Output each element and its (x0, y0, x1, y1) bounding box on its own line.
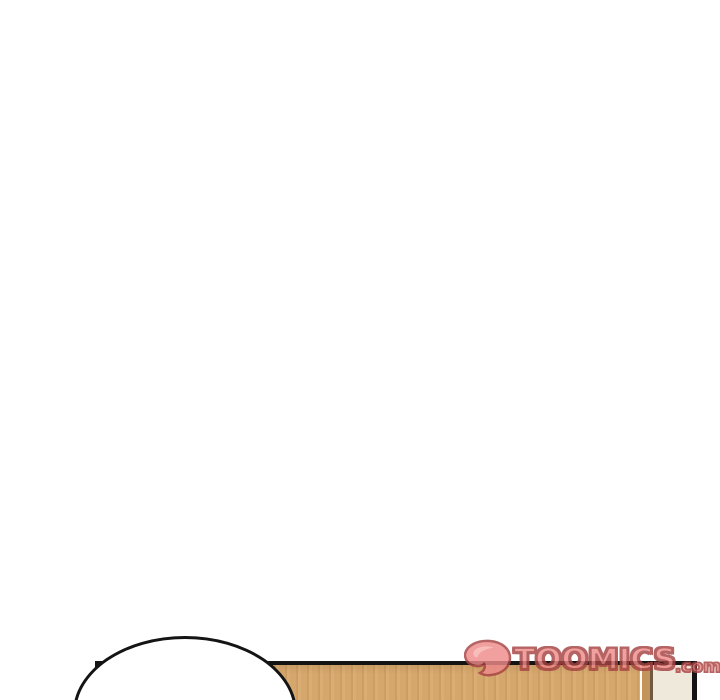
toomics-watermark: TOOMICS .com (464, 637, 720, 683)
toomics-logo-domain: .com (675, 659, 720, 676)
toomics-logo-icon (464, 639, 512, 681)
comic-page: TOOMICS .com (0, 0, 720, 700)
speech-bubble (73, 636, 297, 700)
toomics-logo-text: TOOMICS (514, 646, 676, 675)
